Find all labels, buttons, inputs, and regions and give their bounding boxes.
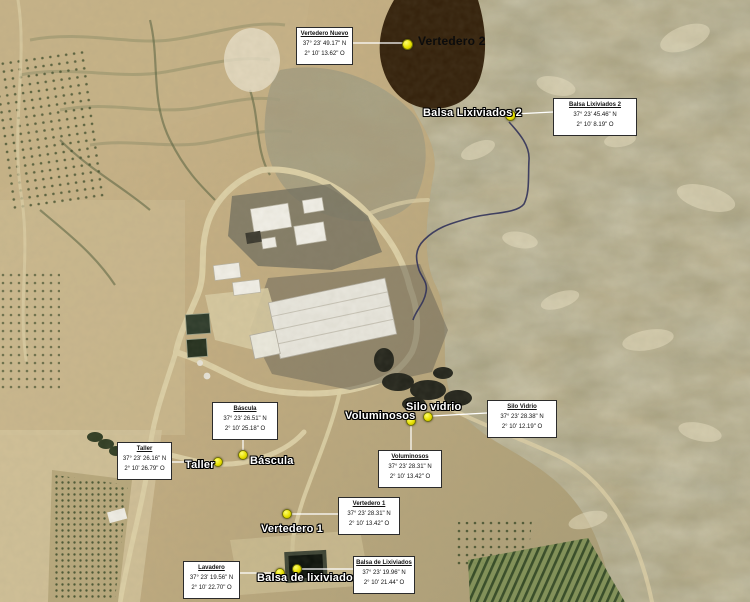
callout-longitude: 2° 10' 13.62" O: [299, 50, 350, 60]
annotated-satellite-map: Vertedero 2 Balsa Lixiviados 2 Voluminos…: [0, 0, 750, 602]
callout-latitude: 37° 23' 19.56" N: [186, 574, 237, 584]
map-label-taller: Taller: [185, 459, 215, 471]
callout-longitude: 2° 10' 21.44" O: [356, 579, 412, 589]
map-label-silo-vidrio: Silo vidrio: [406, 401, 461, 413]
callout-latitude: 37° 23' 45.46" N: [556, 111, 634, 121]
callout-longitude: 2° 10' 13.42" O: [381, 473, 439, 483]
callout-longitude: 2° 10' 13.42" O: [341, 520, 397, 530]
callout-latitude: 37° 23' 19.96" N: [356, 569, 412, 579]
callout-title: Balsa de Lixiviados: [356, 560, 412, 566]
callout-vertedero-1: Vertedero 1 37° 23' 28.31" N 2° 10' 13.4…: [338, 497, 400, 535]
marker-dot-silo-vidrio[interactable]: [423, 412, 433, 422]
callout-latitude: 37° 23' 28.31" N: [381, 463, 439, 473]
callout-voluminosos: Voluminosos 37° 23' 28.31" N 2° 10' 13.4…: [378, 450, 442, 488]
callout-latitude: 37° 23' 26.16" N: [120, 455, 169, 465]
callout-title: Vertedero Nuevo: [299, 31, 350, 37]
map-label-voluminosos: Voluminosos: [345, 410, 415, 422]
map-label-vertedero-1: Vertedero 1: [261, 523, 323, 535]
map-label-vertedero-2: Vertedero 2: [418, 34, 486, 48]
callout-longitude: 2° 10' 26.79" O: [120, 465, 169, 475]
callout-latitude: 37° 23' 28.38" N: [490, 413, 554, 423]
callout-latitude: 37° 23' 49.17" N: [299, 40, 350, 50]
callout-lavadero: Lavadero 37° 23' 19.56" N 2° 10' 22.70" …: [183, 561, 240, 599]
callout-longitude: 2° 10' 22.70" O: [186, 584, 237, 594]
callout-vertedero-nuevo: Vertedero Nuevo 37° 23' 49.17" N 2° 10' …: [296, 27, 353, 65]
callout-longitude: 2° 10' 12.19" O: [490, 423, 554, 433]
marker-dot-bascula[interactable]: [238, 450, 248, 460]
map-label-balsa-lixiviados-2: Balsa Lixiviados 2: [423, 107, 522, 119]
marker-dot-vertedero-1[interactable]: [282, 509, 292, 519]
callout-balsa-lixiviados-2: Balsa Lixiviados 2 37° 23' 45.46" N 2° 1…: [553, 98, 637, 136]
callout-title: Lavadero: [186, 565, 237, 571]
map-label-bascula: Báscula: [250, 455, 294, 467]
map-label-balsa-de-lixiviados: Balsa de lixiviados: [257, 572, 359, 584]
callout-latitude: 37° 23' 28.31" N: [341, 510, 397, 520]
callout-balsa-de-lixiviados: Balsa de Lixiviados 37° 23' 19.96" N 2° …: [353, 556, 415, 594]
marker-dot-vertedero-2[interactable]: [402, 39, 413, 50]
callout-silo-vidrio: Silo Vidrio 37° 23' 28.38" N 2° 10' 12.1…: [487, 400, 557, 438]
callout-title: Balsa Lixiviados 2: [556, 102, 634, 108]
callout-taller: Taller 37° 23' 26.16" N 2° 10' 26.79" O: [117, 442, 172, 480]
callout-title: Báscula: [215, 406, 275, 412]
callout-title: Silo Vidrio: [490, 404, 554, 410]
callout-title: Voluminosos: [381, 454, 439, 460]
callout-bascula: Báscula 37° 23' 26.51" N 2° 10' 25.18" O: [212, 402, 278, 440]
callout-longitude: 2° 10' 8.19" O: [556, 121, 634, 131]
callout-title: Taller: [120, 446, 169, 452]
callout-title: Vertedero 1: [341, 501, 397, 507]
callout-longitude: 2° 10' 25.18" O: [215, 425, 275, 435]
callout-latitude: 37° 23' 26.51" N: [215, 415, 275, 425]
